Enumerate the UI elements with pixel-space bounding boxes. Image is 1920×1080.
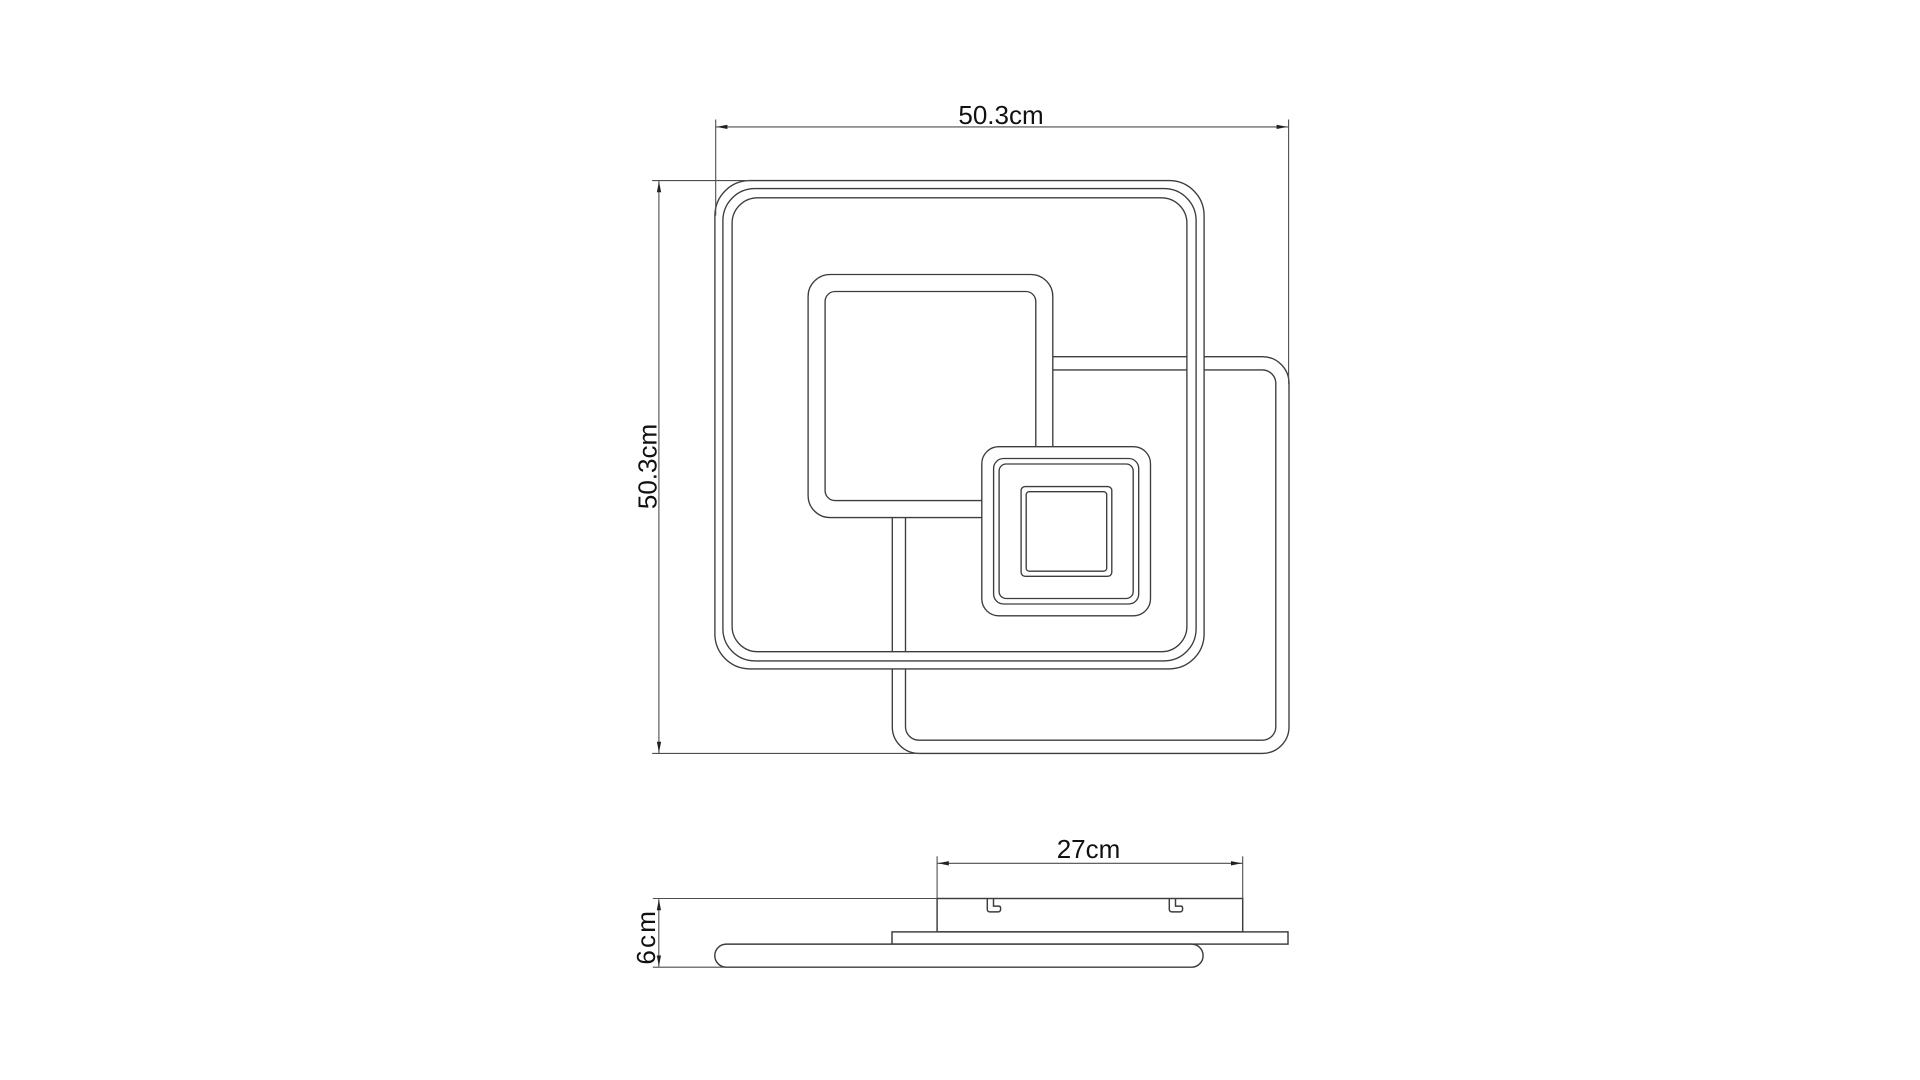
svg-text:50.3cm: 50.3cm [633,424,663,509]
svg-text:50.3cm: 50.3cm [958,100,1043,130]
svg-text:27cm: 27cm [1057,834,1121,864]
svg-text:6cm: 6cm [631,909,661,965]
